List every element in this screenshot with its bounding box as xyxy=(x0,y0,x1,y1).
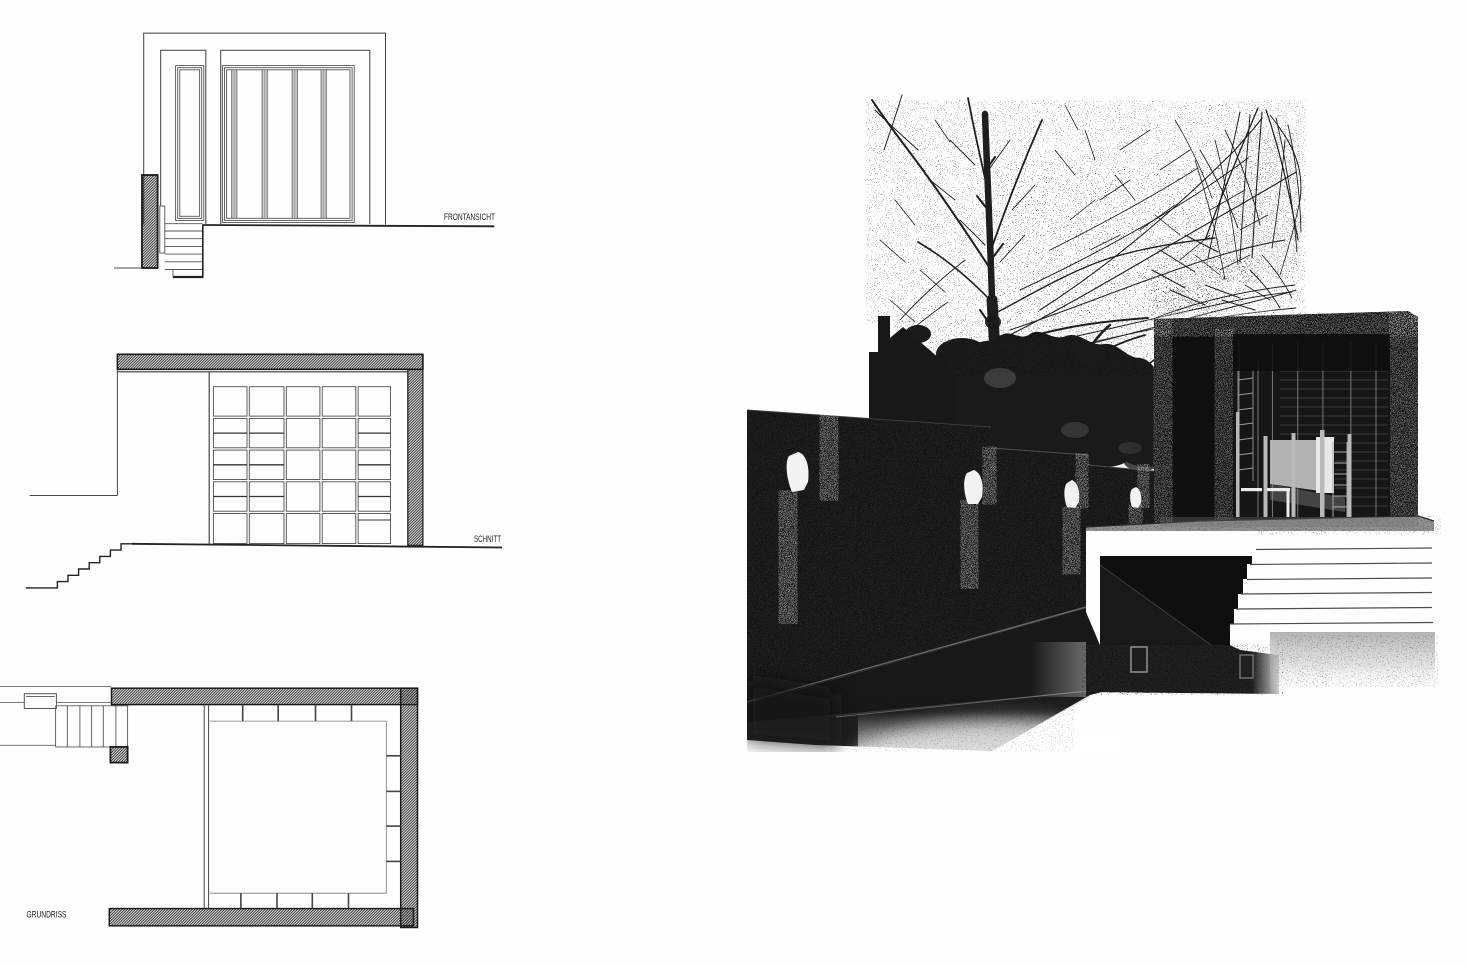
svg-text:SCHNITT: SCHNITT xyxy=(474,534,501,545)
svg-text:GRUNDRISS: GRUNDRISS xyxy=(27,909,67,920)
svg-text:FRONTANSICHT: FRONTANSICHT xyxy=(444,212,495,223)
